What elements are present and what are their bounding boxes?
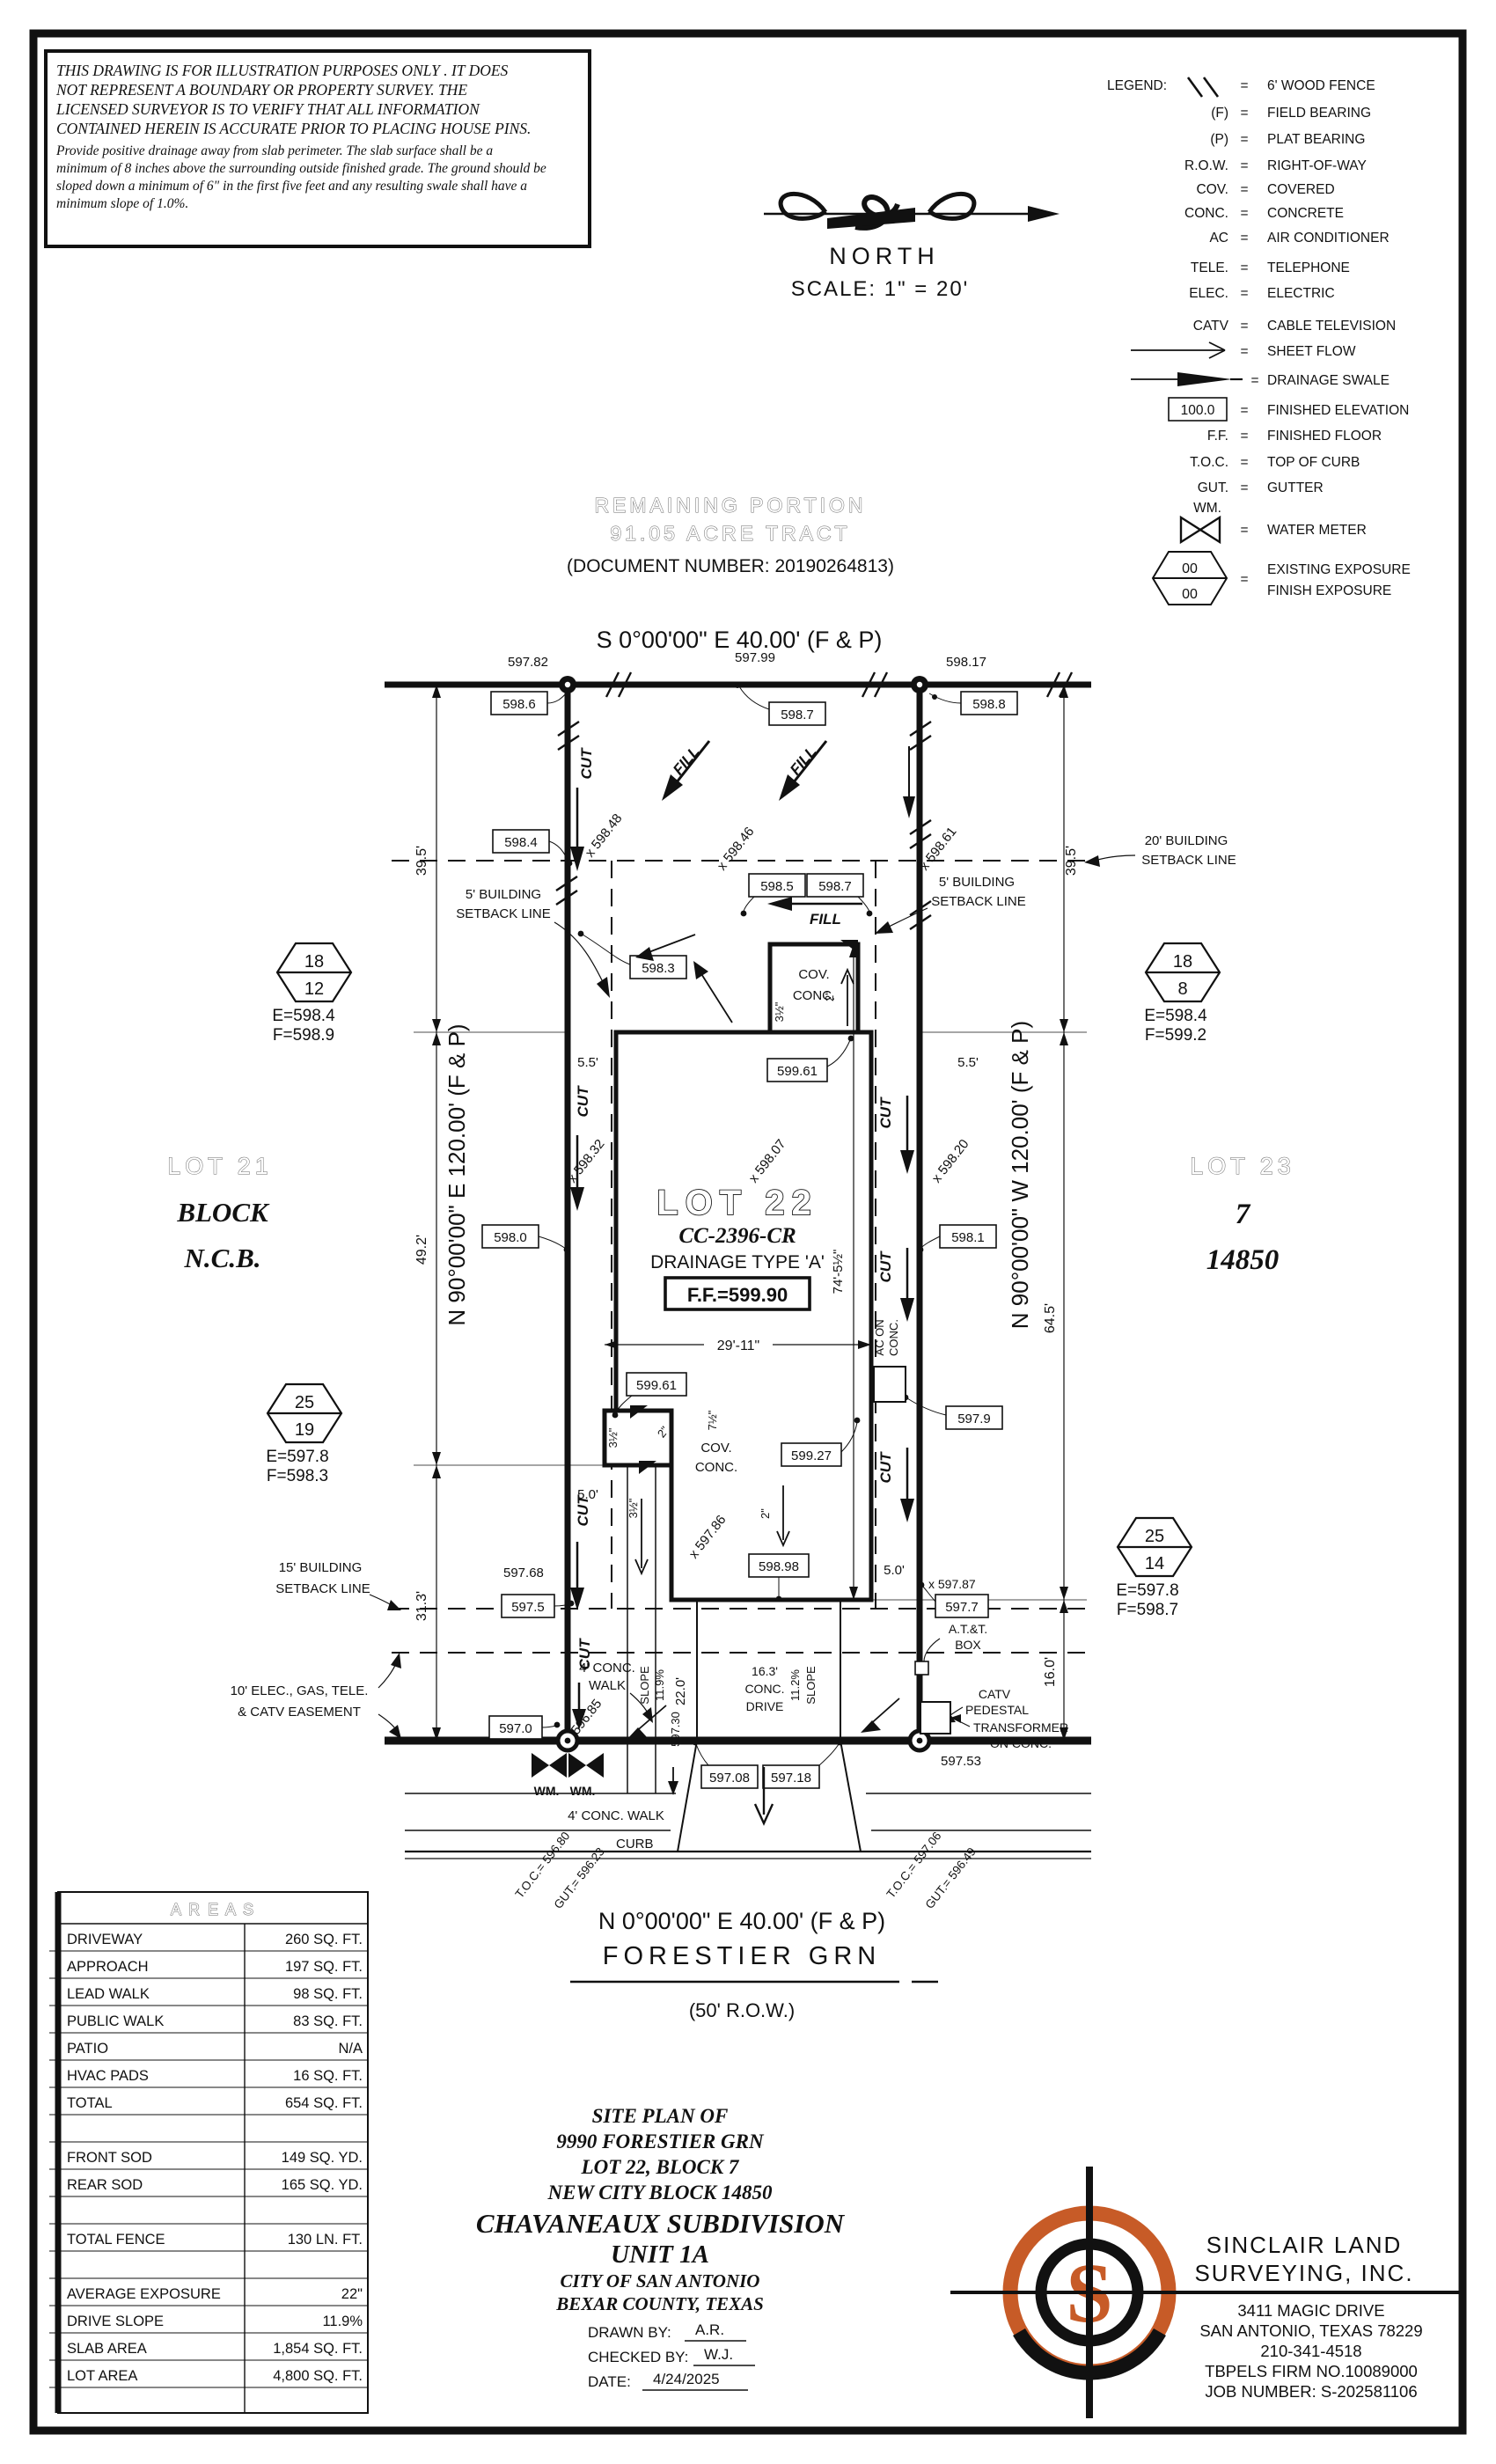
disclaimer-line: CONTAINED HEREIN IS ACCURATE PRIOR TO PL… — [56, 120, 531, 137]
legend-eq: = — [1240, 132, 1248, 147]
elev-box: 598.0 — [494, 1230, 527, 1245]
areas-value: 130 LN. FT. — [288, 2232, 363, 2248]
ac-pad — [874, 1367, 906, 1402]
areas-label: LEAD WALK — [67, 1986, 150, 2002]
elev-box: 598.4 — [504, 835, 538, 850]
lot23-ncb-num: 14850 — [1206, 1244, 1280, 1276]
areas-value: 98 SQ. FT. — [293, 1986, 363, 2002]
legend-desc: TELEPHONE — [1267, 260, 1350, 275]
dim: 597.30 — [669, 1712, 682, 1747]
disclaimer-line: NOT REPRESENT A BOUNDARY OR PROPERTY SUR… — [55, 81, 467, 99]
legend-sym: GUT. — [1198, 480, 1228, 495]
setback-label: 5' BUILDING — [466, 887, 541, 902]
areas-label: DRIVEWAY — [67, 1932, 143, 1947]
areas-label: TOTAL FENCE — [67, 2232, 165, 2248]
legend-eq: = — [1240, 319, 1248, 334]
areas-label: PATIO — [67, 2041, 108, 2057]
hex-num: 18 — [304, 952, 324, 972]
dim: 16.0' — [1043, 1657, 1058, 1687]
exposure-hex-se: 25 14 E=597.8 F=598.7 — [1116, 1518, 1192, 1619]
elev-box: 597.08 — [709, 1771, 750, 1786]
att-box-label: BOX — [955, 1638, 981, 1652]
areas-table: A R E A S DRIVEWAY260 SQ. FT. APPROACH19… — [49, 1892, 368, 2413]
setback-label: 20' BUILDING — [1145, 833, 1228, 848]
spot-elev: 597.82 — [508, 655, 548, 670]
porch-label: COV. — [700, 1441, 731, 1456]
legend-sym: AC — [1209, 231, 1228, 246]
disclaimer-line: Provide positive drainage away from slab… — [55, 143, 493, 158]
dim: 29'-11" — [717, 1338, 759, 1353]
areas-label: AVERAGE EXPOSURE — [67, 2286, 221, 2302]
hex-elev: F=599.2 — [1145, 1026, 1206, 1045]
legend-desc: WATER METER — [1267, 523, 1367, 538]
legend-sym: (P) — [1210, 132, 1228, 147]
legend-eq: = — [1240, 455, 1248, 470]
setback-label: 15' BUILDING — [279, 1560, 363, 1575]
tract-line: 91.05 ACRE TRACT — [610, 522, 850, 545]
transformer-label: ON CONC. — [990, 1736, 1052, 1750]
legend-desc: CONCRETE — [1267, 206, 1344, 221]
disclaimer-line: minimum slope of 1.0%. — [56, 196, 188, 211]
areas-value: 149 SQ. YD. — [282, 2150, 363, 2166]
areas-value: 197 SQ. FT. — [285, 1959, 363, 1975]
legend-eq: = — [1240, 158, 1248, 173]
areas-label: LOT AREA — [67, 2368, 137, 2384]
dim: 11.2% — [788, 1669, 802, 1701]
legend-desc: TOP OF CURB — [1267, 455, 1360, 470]
legend-sym: (F) — [1211, 106, 1228, 121]
flatwork — [405, 1465, 1091, 1859]
areas-label: TOTAL — [67, 2095, 113, 2111]
ac-label: CONC. — [887, 1319, 900, 1356]
spot-elev: x 598.48 — [583, 811, 626, 861]
dim: 5.5' — [577, 1055, 598, 1070]
spot-elev: x 598.46 — [715, 825, 758, 874]
legend-eq: = — [1250, 373, 1258, 388]
areas-value: 260 SQ. FT. — [285, 1932, 363, 1947]
title-subdivision: CHAVANEAUX SUBDIVISION — [476, 2208, 846, 2239]
dim: 39.5' — [1064, 846, 1079, 876]
hex-elev: F=598.7 — [1117, 1601, 1178, 1619]
lot22-cc: CC-2396-CR — [678, 1224, 796, 1248]
dim: 74'-5½" — [831, 1250, 846, 1294]
wm-label: WM. — [570, 1784, 596, 1798]
lot21-block: BLOCK — [176, 1197, 270, 1228]
spot-elev: x 598.32 — [565, 1137, 608, 1186]
walk-label: 4' CONC. WALK — [568, 1808, 664, 1823]
spot-elev: 598.17 — [946, 655, 986, 670]
curb-elev: GUT.= 596.49 — [923, 1845, 979, 1911]
hex-elev: E=597.8 — [266, 1448, 328, 1466]
dim: 2" — [759, 1508, 772, 1519]
areas-value: 4,800 SQ. FT. — [273, 2368, 363, 2384]
areas-value: N/A — [338, 2041, 363, 2057]
porch-label: COV. — [798, 967, 829, 982]
drainage-swale-icon — [1131, 372, 1243, 386]
exposure-hexagon-icon: 00 00 — [1153, 552, 1227, 605]
dim: 3½" — [606, 1427, 620, 1448]
sheet-flow-icon — [1131, 342, 1225, 358]
legend-desc: EXISTING EXPOSURE — [1267, 562, 1411, 577]
spot-elev: x 598.07 — [746, 1137, 789, 1186]
water-meter-icon — [1181, 517, 1220, 542]
legend-eq: = — [1240, 286, 1248, 301]
legend-desc: CABLE TELEVISION — [1267, 319, 1396, 334]
scale-label: SCALE: 1" = 20' — [791, 277, 970, 301]
setback-label: 5' BUILDING — [939, 875, 1015, 890]
legend-eq: = — [1240, 403, 1248, 418]
spot-elev: 597.53 — [941, 1754, 981, 1769]
cut-label: CUT — [575, 1494, 591, 1527]
curb-label: CURB — [616, 1837, 654, 1852]
company-firm: TBPELS FIRM NO.10089000 — [1205, 2362, 1418, 2380]
elev-box: 598.7 — [781, 708, 814, 722]
legend-eq: = — [1240, 480, 1248, 495]
areas-label: DRIVE SLOPE — [67, 2314, 164, 2329]
elev-box: 597.9 — [957, 1412, 991, 1426]
elev-box: 597.0 — [499, 1721, 532, 1736]
areas-label: SLAB AREA — [67, 2341, 147, 2357]
setback-label: SETBACK LINE — [931, 894, 1026, 909]
legend-eq: = — [1240, 260, 1248, 275]
north-arrow — [764, 194, 1060, 229]
areas-value: 1,854 SQ. FT. — [273, 2341, 363, 2357]
elev-box: 598.1 — [951, 1230, 985, 1245]
spot-elev: 597.99 — [735, 650, 775, 665]
porch-label: CONC. — [793, 988, 835, 1003]
hex-num: 18 — [1173, 952, 1192, 972]
lot22-drainage: DRAINAGE TYPE 'A' — [650, 1252, 825, 1272]
legend-sym: R.O.W. — [1184, 158, 1228, 173]
disclaimer-line: minimum of 8 inches above the surroundin… — [56, 161, 546, 176]
legend-desc: FINISH EXPOSURE — [1267, 583, 1391, 598]
hex-elev: E=597.8 — [1116, 1581, 1178, 1600]
dim: 64.5' — [1043, 1303, 1058, 1333]
bearing-left: N 90°00'00" E 120.00' (F & P) — [444, 1023, 470, 1325]
walk-label: 4' CONC. — [579, 1661, 635, 1676]
checked-by-value: W.J. — [704, 2346, 733, 2363]
legend-desc: RIGHT-OF-WAY — [1267, 158, 1367, 173]
legend-desc: AIR CONDITIONER — [1267, 231, 1390, 246]
spot-elev: x 598.61 — [917, 825, 960, 874]
legend: LEGEND: = 6' WOOD FENCE (F)=FIELD BEARIN… — [1107, 77, 1411, 605]
cut-label: CUT — [877, 1250, 894, 1283]
disclaimer-line: LICENSED SURVEYOR IS TO VERIFY THAT ALL … — [55, 100, 480, 118]
cut-label: CUT — [575, 1085, 591, 1118]
spot-elev: 597.68 — [503, 1566, 544, 1580]
elev-box: 597.5 — [511, 1600, 545, 1615]
legend-eq: = — [1240, 231, 1248, 246]
dim: 5.0' — [884, 1563, 905, 1578]
disclaimer-note: THIS DRAWING IS FOR ILLUSTRATION PURPOSE… — [46, 51, 590, 246]
setback-label: SETBACK LINE — [1141, 853, 1236, 868]
setback-label: SETBACK LINE — [456, 906, 551, 921]
legend-eq: = — [1240, 572, 1248, 587]
att-box-icon — [915, 1661, 928, 1675]
walk-label: WALK — [589, 1678, 626, 1693]
elev-box: 599.61 — [636, 1378, 677, 1393]
spot-elev: x 597.87 — [928, 1577, 976, 1591]
dim: 31.3' — [414, 1591, 429, 1621]
legend-desc: GUTTER — [1267, 480, 1324, 495]
title-block: SITE PLAN OF 9990 FORESTIER GRN LOT 22, … — [476, 2105, 846, 2390]
fill-label: FILL — [810, 911, 841, 928]
legend-sym: WM. — [1193, 501, 1221, 516]
legend-desc: 6' WOOD FENCE — [1267, 78, 1375, 93]
company-address: 3411 MAGIC DRIVE — [1237, 2301, 1384, 2320]
title-line: 9990 FORESTIER GRN — [556, 2130, 765, 2152]
legend-eq: = — [1240, 429, 1248, 444]
elev-box: 597.7 — [945, 1600, 979, 1615]
company-address: SAN ANTONIO, TEXAS 78229 — [1199, 2321, 1422, 2340]
dim: 39.5' — [414, 846, 429, 876]
elev-box: 598.98 — [759, 1559, 799, 1574]
spot-elev: x 597.86 — [686, 1513, 730, 1562]
catv-label: PEDESTAL — [965, 1703, 1029, 1717]
elev-box: 599.27 — [791, 1448, 832, 1463]
company-phone: 210-341-4518 — [1260, 2342, 1361, 2360]
areas-label: PUBLIC WALK — [67, 2013, 164, 2029]
bearing-right: N 90°00'00" W 120.00' (F & P) — [1007, 1021, 1033, 1329]
title-line: NEW CITY BLOCK 14850 — [547, 2182, 773, 2204]
hex-elev: F=598.9 — [273, 1026, 334, 1045]
spot-elev: x 598.20 — [929, 1137, 972, 1186]
cut-label: CUT — [877, 1096, 894, 1129]
areas-label: FRONT SOD — [67, 2150, 152, 2166]
water-meter-icon — [532, 1753, 549, 1778]
legend-sym: ELEC. — [1189, 286, 1228, 301]
legend-desc: FINISHED ELEVATION — [1267, 403, 1409, 418]
bearing-top: S 0°00'00" E 40.00' (F & P) — [597, 627, 883, 653]
elev-box: 598.5 — [760, 879, 794, 894]
legend-eq: = — [1240, 523, 1248, 538]
cut-label: CUT — [877, 1451, 894, 1484]
hex-num: 12 — [304, 979, 324, 999]
tract-doc-number: (DOCUMENT NUMBER: 20190264813) — [567, 556, 894, 576]
legend-eq: = — [1240, 106, 1248, 121]
elev-box: 598.6 — [502, 697, 536, 712]
plan-notes: 5' BUILDING SETBACK LINE 5' BUILDING SET… — [231, 833, 1236, 1911]
hex-num: 25 — [295, 1393, 314, 1412]
legend-desc: COVERED — [1267, 182, 1335, 197]
legend-eq: = — [1240, 206, 1248, 221]
legend-sym: T.O.C. — [1190, 455, 1228, 470]
checked-by-label: CHECKED BY: — [588, 2349, 688, 2365]
disclaimer-line: THIS DRAWING IS FOR ILLUSTRATION PURPOSE… — [56, 62, 509, 79]
hex-elev: E=598.4 — [272, 1007, 335, 1025]
water-meter-icon — [568, 1753, 586, 1778]
north-label: NORTH — [829, 243, 940, 269]
legend-sym: CATV — [1193, 319, 1229, 334]
lot23-label: LOT 23 — [1190, 1153, 1295, 1179]
areas-value: 11.9% — [322, 2314, 363, 2329]
finished-elevation-icon: 100.0 — [1169, 398, 1227, 421]
areas-value: 165 SQ. YD. — [282, 2177, 363, 2193]
title-county: BEXAR COUNTY, TEXAS — [555, 2293, 764, 2314]
catv-label: CATV — [979, 1687, 1011, 1701]
disclaimer-line: sloped down a minimum of 6" in the first… — [56, 179, 527, 194]
legend-desc: DRAINAGE SWALE — [1267, 373, 1390, 388]
att-box-label: A.T.&T. — [949, 1622, 987, 1636]
transformer-label: TRANSFORMER — [973, 1720, 1068, 1734]
legend-desc: SHEET FLOW — [1267, 344, 1356, 359]
exposure-hex-ne: 18 8 E=598.4 F=599.2 — [1144, 943, 1220, 1045]
dim: 11.9% — [653, 1669, 666, 1701]
ac-label: AC ON — [873, 1319, 886, 1355]
spot-elev: 596.85 — [568, 1697, 605, 1738]
legend-sym: COV. — [1197, 182, 1228, 197]
ff-elevation: F.F.=599.90 — [687, 1284, 788, 1306]
legend-desc: ELECTRIC — [1267, 286, 1335, 301]
setback-label: SETBACK LINE — [275, 1581, 370, 1596]
site-plan-sheet: THIS DRAWING IS FOR ILLUSTRATION PURPOSE… — [0, 0, 1496, 2464]
elev-box: 598.7 — [818, 879, 852, 894]
legend-sym: 00 — [1182, 587, 1198, 602]
areas-label: REAR SOD — [67, 2177, 143, 2193]
sinclair-logo: S — [950, 2167, 1459, 2418]
legend-sym: 100.0 — [1181, 403, 1215, 418]
date-value: 4/24/2025 — [653, 2371, 720, 2387]
title-line: SITE PLAN OF — [592, 2105, 729, 2127]
dim: 49.2' — [414, 1235, 429, 1265]
porch-label: CONC. — [695, 1460, 737, 1475]
areas-value: 22" — [341, 2286, 363, 2302]
company-name: SURVEYING, INC. — [1194, 2260, 1413, 2286]
areas-title: A R E A S — [171, 1901, 255, 1918]
hex-num: 8 — [1177, 979, 1187, 999]
legend-desc: PLAT BEARING — [1267, 132, 1365, 147]
dim: DRIVE — [746, 1699, 784, 1713]
elev-box: 598.8 — [972, 697, 1006, 712]
lot21-label: LOT 21 — [167, 1153, 273, 1179]
legend-desc: FIELD BEARING — [1267, 106, 1371, 121]
title-unit: UNIT 1A — [611, 2240, 709, 2269]
title-line: LOT 22, BLOCK 7 — [581, 2156, 740, 2178]
company-name: SINCLAIR LAND — [1206, 2232, 1403, 2258]
dim: SLOPE — [638, 1666, 651, 1705]
hex-num: 19 — [295, 1420, 314, 1440]
water-meter-icon — [549, 1753, 567, 1778]
legend-sym: F.F. — [1207, 429, 1228, 444]
dim: 3½" — [627, 1498, 640, 1518]
tract-line: REMAINING PORTION — [594, 494, 866, 517]
lot21-ncb: N.C.B. — [184, 1243, 261, 1273]
elev-box: 599.61 — [777, 1064, 818, 1079]
lot22-label: LOT 22 — [656, 1184, 818, 1222]
legend-eq: = — [1240, 344, 1248, 359]
dim: 22.0' — [673, 1677, 688, 1705]
easement-label: 10' ELEC., GAS, TELE. — [231, 1683, 369, 1698]
dim: 3½" — [773, 1001, 786, 1022]
legend-sym: 00 — [1182, 561, 1198, 576]
lot23-block-num: 7 — [1236, 1199, 1251, 1230]
company-job-number: JOB NUMBER: S-202581106 — [1205, 2382, 1417, 2401]
legend-title: LEGEND: — [1107, 78, 1167, 93]
date-label: DATE: — [588, 2373, 631, 2390]
hex-num: 25 — [1145, 1527, 1164, 1546]
areas-label: HVAC PADS — [67, 2068, 149, 2084]
street-name: FORESTIER GRN — [603, 1942, 881, 1970]
legend-desc: FINISHED FLOOR — [1267, 429, 1382, 444]
title-city: CITY OF SAN ANTONIO — [561, 2270, 760, 2292]
areas-value: 83 SQ. FT. — [293, 2013, 363, 2029]
legend-sym: CONC. — [1184, 206, 1228, 221]
fill-label: FILL — [787, 744, 820, 779]
wm-label: WM. — [534, 1784, 560, 1798]
curb-elev: GUT.= 596.23 — [552, 1845, 607, 1911]
dim: 5.5' — [957, 1055, 979, 1070]
easement-label: & CATV EASEMENT — [238, 1705, 361, 1720]
exposure-hex-nw: 18 12 E=598.4 F=598.9 — [272, 943, 351, 1045]
legend-eq: = — [1240, 182, 1248, 197]
areas-label: APPROACH — [67, 1959, 149, 1975]
hex-num: 14 — [1145, 1554, 1164, 1573]
drawn-by-value: A.R. — [695, 2321, 724, 2338]
transformer-icon — [920, 1702, 950, 1734]
dim: 7½" — [706, 1410, 719, 1430]
company-block: S SINCLAIR LAND SURVEYING, INC. 3411 MAG… — [950, 2167, 1459, 2418]
bearing-bottom: N 0°00'00" E 40.00' (F & P) — [598, 1908, 885, 1934]
street-row: (50' R.O.W.) — [689, 1999, 795, 2021]
dim: SLOPE — [804, 1666, 818, 1705]
exposure-hex-sw: 25 19 E=597.8 F=598.3 — [266, 1384, 341, 1485]
water-meter-icon — [586, 1753, 604, 1778]
hex-elev: F=598.3 — [267, 1467, 328, 1485]
areas-value: 16 SQ. FT. — [293, 2068, 363, 2084]
cut-label: CUT — [578, 747, 595, 780]
hex-elev: E=598.4 — [1144, 1007, 1207, 1025]
elev-box: 597.18 — [771, 1771, 811, 1786]
dim: CONC. — [744, 1682, 784, 1696]
fill-label: FILL — [670, 744, 703, 779]
legend-eq: = — [1240, 78, 1248, 93]
wood-fence-icon — [1188, 77, 1218, 97]
drawn-by-label: DRAWN BY: — [588, 2324, 671, 2341]
legend-sym: TELE. — [1191, 260, 1228, 275]
dim: 16.3' — [752, 1664, 778, 1678]
areas-value: 654 SQ. FT. — [285, 2095, 363, 2111]
elev-box: 598.3 — [642, 961, 675, 976]
